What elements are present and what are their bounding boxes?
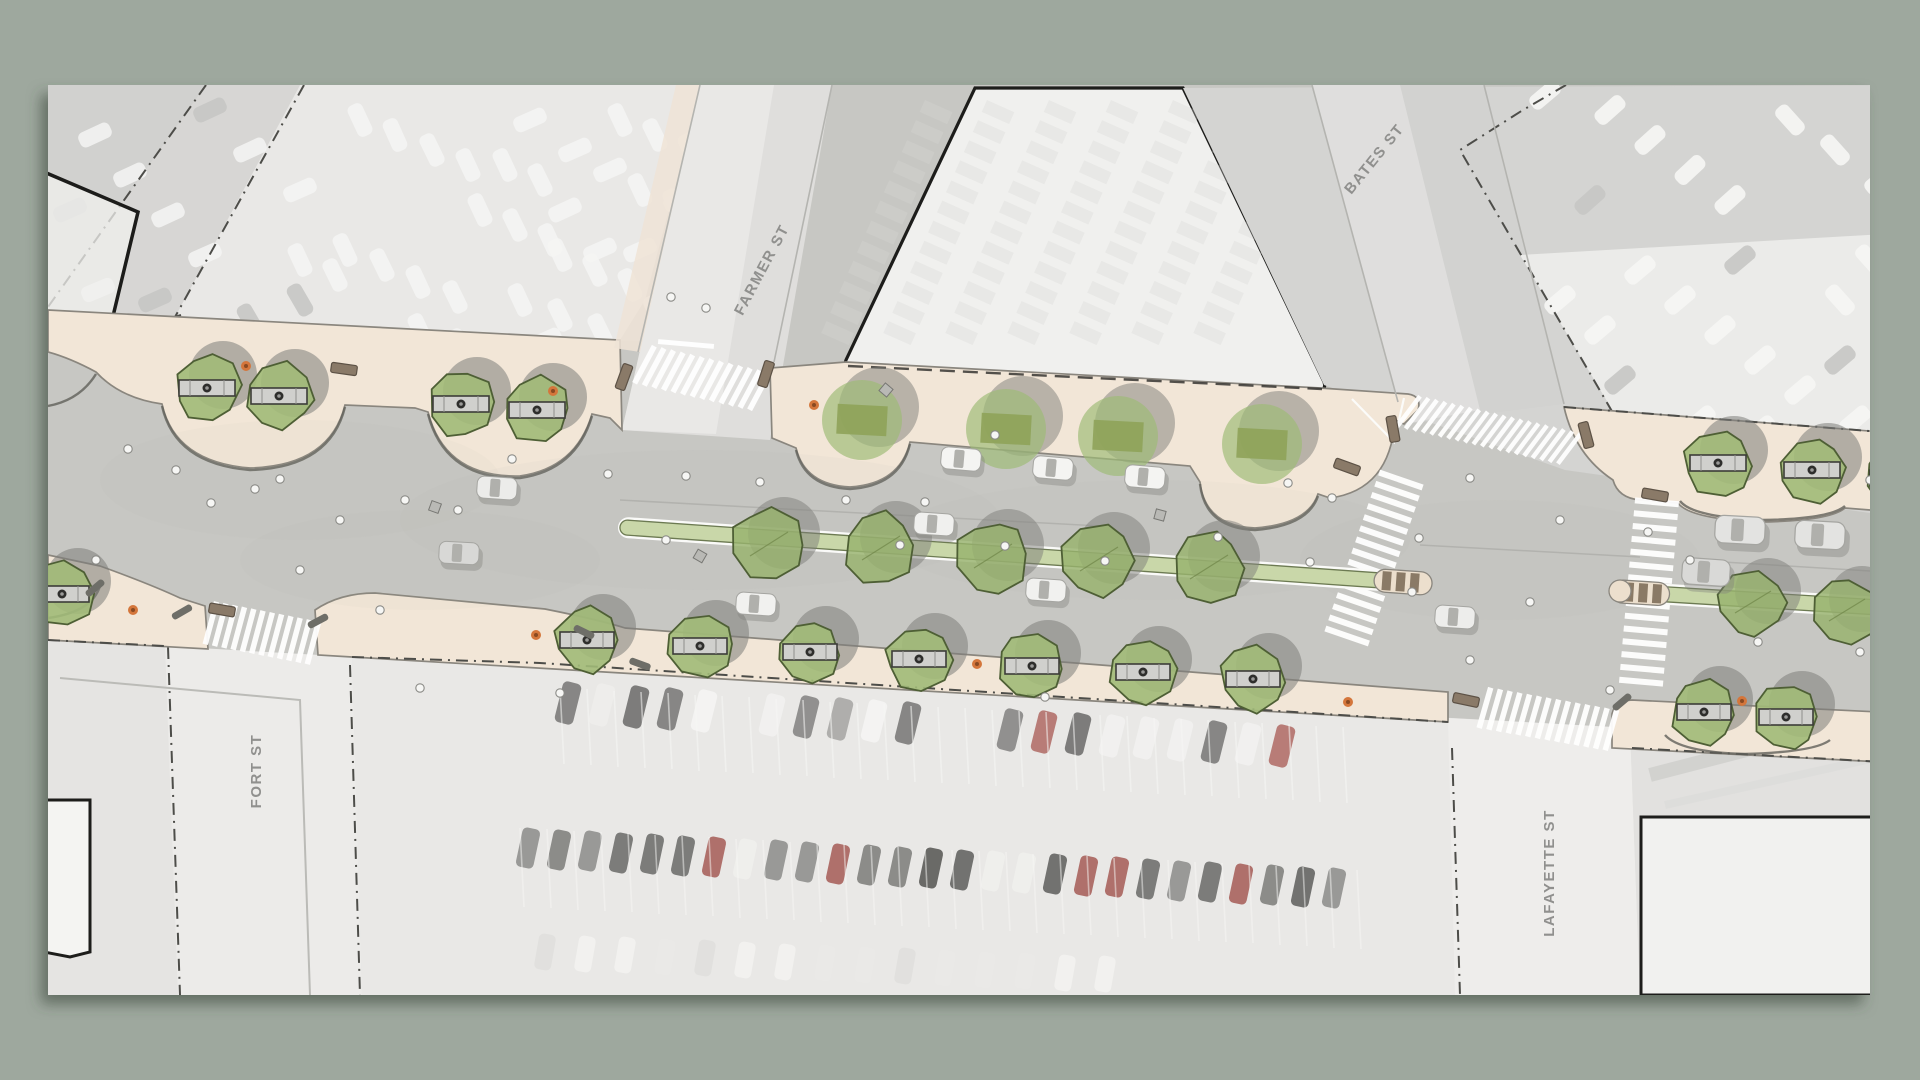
svg-text:FORT ST: FORT ST xyxy=(248,734,265,809)
svg-text:LAFAYETTE ST: LAFAYETTE ST xyxy=(1541,809,1558,936)
